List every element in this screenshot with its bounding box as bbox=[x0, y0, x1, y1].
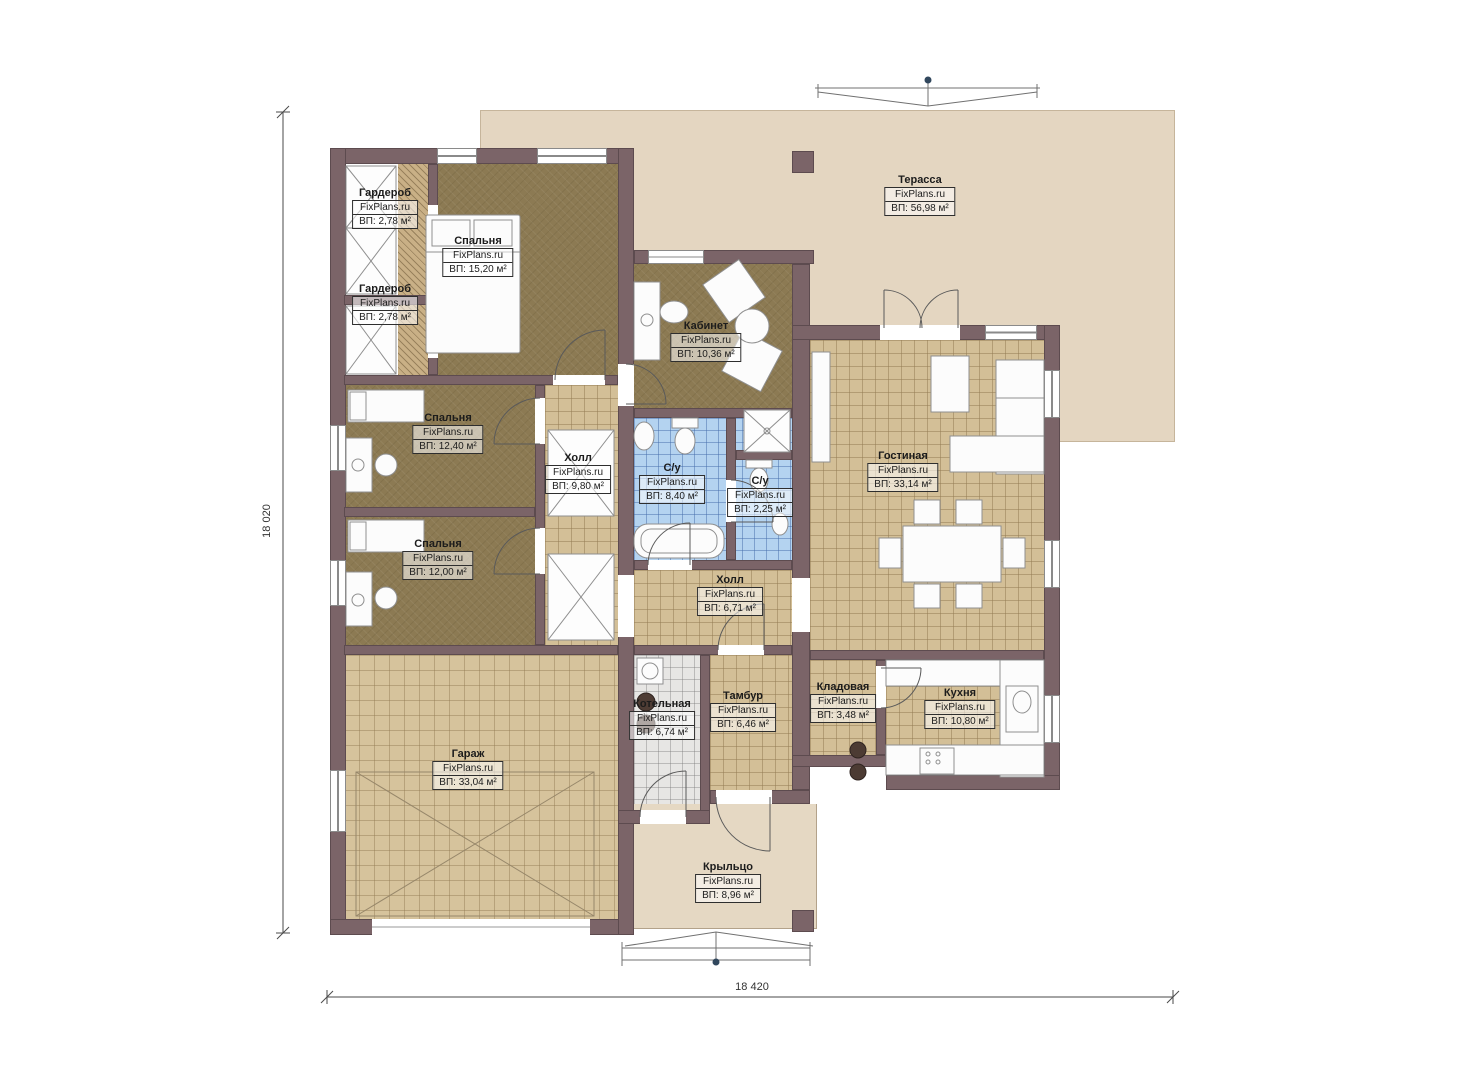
room-label-livingroom: Гостиная FixPlans.ru ВП: 33,14 м² bbox=[867, 450, 938, 492]
door-opening bbox=[716, 790, 772, 804]
watermark: FixPlans.ru bbox=[698, 588, 762, 602]
room-info-box: FixPlans.ru ВП: 10,36 м² bbox=[670, 333, 741, 362]
window bbox=[1044, 540, 1060, 588]
room-name: Кухня bbox=[924, 687, 995, 699]
wall bbox=[700, 655, 710, 824]
room-label-hall-1: Холл FixPlans.ru ВП: 9,80 м² bbox=[545, 452, 611, 494]
room-area: ВП: 9,80 м² bbox=[546, 480, 610, 493]
room-label-boiler: Котельная FixPlans.ru ВП: 6,74 м² bbox=[629, 698, 695, 740]
room-info-box: FixPlans.ru ВП: 15,20 м² bbox=[442, 248, 513, 277]
window bbox=[1044, 695, 1060, 743]
floor-plan: Гардероб FixPlans.ru ВП: 2,78 м² Спальня… bbox=[0, 0, 1474, 1080]
room-info-box: FixPlans.ru ВП: 12,00 м² bbox=[402, 551, 473, 580]
door-opening bbox=[428, 205, 438, 253]
room-name: Терасса bbox=[884, 174, 955, 186]
wall bbox=[736, 450, 792, 460]
room-name: Гостиная bbox=[867, 450, 938, 462]
watermark: FixPlans.ru bbox=[413, 426, 482, 440]
room-label-bedroom-1: Спальня FixPlans.ru ВП: 15,20 м² bbox=[442, 235, 513, 277]
room-area: ВП: 12,40 м² bbox=[413, 440, 482, 453]
window bbox=[330, 425, 346, 471]
room-info-box: FixPlans.ru ВП: 6,46 м² bbox=[710, 703, 776, 732]
door-opening bbox=[535, 528, 545, 574]
room-name: Тамбур bbox=[710, 690, 776, 702]
room-info-box: FixPlans.ru ВП: 33,14 м² bbox=[867, 463, 938, 492]
door-opening bbox=[876, 666, 886, 708]
window bbox=[437, 148, 477, 164]
dimension-width-label: 18 420 bbox=[735, 981, 769, 993]
door-opening bbox=[553, 375, 605, 385]
room-label-bathroom-2: С/у FixPlans.ru ВП: 2,25 м² bbox=[727, 475, 793, 517]
room-name: Котельная bbox=[629, 698, 695, 710]
window bbox=[1044, 370, 1060, 418]
dimension-height-label: 18 020 bbox=[261, 504, 273, 538]
watermark: FixPlans.ru bbox=[885, 188, 954, 202]
watermark: FixPlans.ru bbox=[353, 201, 417, 215]
room-area: ВП: 56,98 м² bbox=[885, 202, 954, 215]
wall bbox=[344, 645, 618, 655]
room-label-pantry: Кладовая FixPlans.ru ВП: 3,48 м² bbox=[810, 681, 876, 723]
room-label-wardrobe-2: Гардероб FixPlans.ru ВП: 2,78 м² bbox=[352, 283, 418, 325]
room-name: Спальня bbox=[442, 235, 513, 247]
room-name: Кабинет bbox=[670, 320, 741, 332]
room-label-cabinet: Кабинет FixPlans.ru ВП: 10,36 м² bbox=[670, 320, 741, 362]
wall bbox=[810, 650, 1044, 660]
wall bbox=[344, 507, 535, 517]
room-area: ВП: 33,04 м² bbox=[433, 776, 502, 789]
room-info-box: FixPlans.ru ВП: 8,40 м² bbox=[639, 475, 705, 504]
chimney bbox=[792, 151, 814, 173]
wall bbox=[792, 755, 886, 767]
watermark: FixPlans.ru bbox=[433, 762, 502, 776]
room-info-box: FixPlans.ru ВП: 2,25 м² bbox=[727, 488, 793, 517]
wall bbox=[634, 408, 792, 418]
bedroom3-floor bbox=[344, 517, 535, 645]
room-area: ВП: 6,71 м² bbox=[698, 602, 762, 615]
room-name: Спальня bbox=[412, 412, 483, 424]
garage-gate-opening bbox=[372, 919, 590, 935]
room-info-box: FixPlans.ru ВП: 2,78 м² bbox=[352, 200, 418, 229]
wall bbox=[886, 775, 1060, 790]
room-name: Холл bbox=[697, 574, 763, 586]
porch-pillar bbox=[792, 910, 814, 932]
room-area: ВП: 8,96 м² bbox=[696, 889, 760, 902]
room-info-box: FixPlans.ru ВП: 3,48 м² bbox=[810, 694, 876, 723]
door-opening bbox=[648, 560, 692, 570]
livingroom-floor bbox=[810, 340, 1044, 650]
room-name: Спальня bbox=[402, 538, 473, 550]
room-area: ВП: 10,36 м² bbox=[671, 348, 740, 361]
window bbox=[537, 148, 607, 164]
room-name: Гардероб bbox=[352, 187, 418, 199]
room-area: ВП: 6,74 м² bbox=[630, 726, 694, 739]
room-area: ВП: 33,14 м² bbox=[868, 478, 937, 491]
room-area: ВП: 3,48 м² bbox=[811, 709, 875, 722]
wardrobe1-shelf bbox=[398, 164, 428, 295]
room-label-bedroom-2: Спальня FixPlans.ru ВП: 12,40 м² bbox=[412, 412, 483, 454]
watermark: FixPlans.ru bbox=[353, 297, 417, 311]
watermark: FixPlans.ru bbox=[640, 476, 704, 490]
room-info-box: FixPlans.ru ВП: 6,74 м² bbox=[629, 711, 695, 740]
watermark: FixPlans.ru bbox=[711, 704, 775, 718]
wall bbox=[792, 264, 810, 790]
room-label-porch: Крыльцо FixPlans.ru ВП: 8,96 м² bbox=[695, 861, 761, 903]
room-name: Холл bbox=[545, 452, 611, 464]
window bbox=[648, 250, 704, 264]
room-name: Гараж bbox=[432, 748, 503, 760]
room-info-box: FixPlans.ru ВП: 10,80 м² bbox=[924, 700, 995, 729]
window bbox=[330, 560, 346, 606]
room-name: С/у bbox=[639, 462, 705, 474]
room-info-box: FixPlans.ru ВП: 33,04 м² bbox=[432, 761, 503, 790]
watermark: FixPlans.ru bbox=[696, 875, 760, 889]
watermark: FixPlans.ru bbox=[868, 464, 937, 478]
door-opening bbox=[880, 325, 960, 340]
wall bbox=[634, 645, 792, 655]
room-info-box: FixPlans.ru ВП: 6,71 м² bbox=[697, 587, 763, 616]
room-label-kitchen: Кухня FixPlans.ru ВП: 10,80 м² bbox=[924, 687, 995, 729]
window bbox=[330, 770, 346, 832]
watermark: FixPlans.ru bbox=[546, 466, 610, 480]
room-label-bathroom-1: С/у FixPlans.ru ВП: 8,40 м² bbox=[639, 462, 705, 504]
room-info-box: FixPlans.ru ВП: 56,98 м² bbox=[884, 187, 955, 216]
watermark: FixPlans.ru bbox=[811, 695, 875, 709]
room-label-wardrobe-1: Гардероб FixPlans.ru ВП: 2,78 м² bbox=[352, 187, 418, 229]
watermark: FixPlans.ru bbox=[925, 701, 994, 715]
watermark: FixPlans.ru bbox=[630, 712, 694, 726]
room-area: ВП: 15,20 м² bbox=[443, 263, 512, 276]
hall1-floor bbox=[545, 385, 618, 645]
room-label-tambour: Тамбур FixPlans.ru ВП: 6,46 м² bbox=[710, 690, 776, 732]
door-opening bbox=[428, 310, 438, 358]
room-name: Кладовая bbox=[810, 681, 876, 693]
watermark: FixPlans.ru bbox=[728, 489, 792, 503]
room-info-box: FixPlans.ru ВП: 8,96 м² bbox=[695, 874, 761, 903]
room-info-box: FixPlans.ru ВП: 2,78 м² bbox=[352, 296, 418, 325]
room-label-terrace: Терасса FixPlans.ru ВП: 56,98 м² bbox=[884, 174, 955, 216]
door-opening bbox=[718, 645, 764, 655]
room-label-hall-2: Холл FixPlans.ru ВП: 6,71 м² bbox=[697, 574, 763, 616]
door-opening bbox=[640, 810, 686, 824]
window bbox=[985, 325, 1037, 340]
room-area: ВП: 2,78 м² bbox=[353, 215, 417, 228]
door-opening bbox=[618, 364, 634, 406]
room-area: ВП: 10,80 м² bbox=[925, 715, 994, 728]
room-label-bedroom-3: Спальня FixPlans.ru ВП: 12,00 м² bbox=[402, 538, 473, 580]
watermark: FixPlans.ru bbox=[403, 552, 472, 566]
door-opening bbox=[792, 578, 810, 632]
room-name: Крыльцо bbox=[695, 861, 761, 873]
room-name: Гардероб bbox=[352, 283, 418, 295]
room-info-box: FixPlans.ru ВП: 12,40 м² bbox=[412, 425, 483, 454]
room-area: ВП: 2,25 м² bbox=[728, 503, 792, 516]
room-area: ВП: 6,46 м² bbox=[711, 718, 775, 731]
door-opening bbox=[535, 398, 545, 444]
room-label-garage: Гараж FixPlans.ru ВП: 33,04 м² bbox=[432, 748, 503, 790]
room-area: ВП: 2,78 м² bbox=[353, 311, 417, 324]
room-area: ВП: 12,00 м² bbox=[403, 566, 472, 579]
room-name: С/у bbox=[727, 475, 793, 487]
room-area: ВП: 8,40 м² bbox=[640, 490, 704, 503]
watermark: FixPlans.ru bbox=[671, 334, 740, 348]
watermark: FixPlans.ru bbox=[443, 249, 512, 263]
door-opening bbox=[618, 575, 634, 637]
room-info-box: FixPlans.ru ВП: 9,80 м² bbox=[545, 465, 611, 494]
